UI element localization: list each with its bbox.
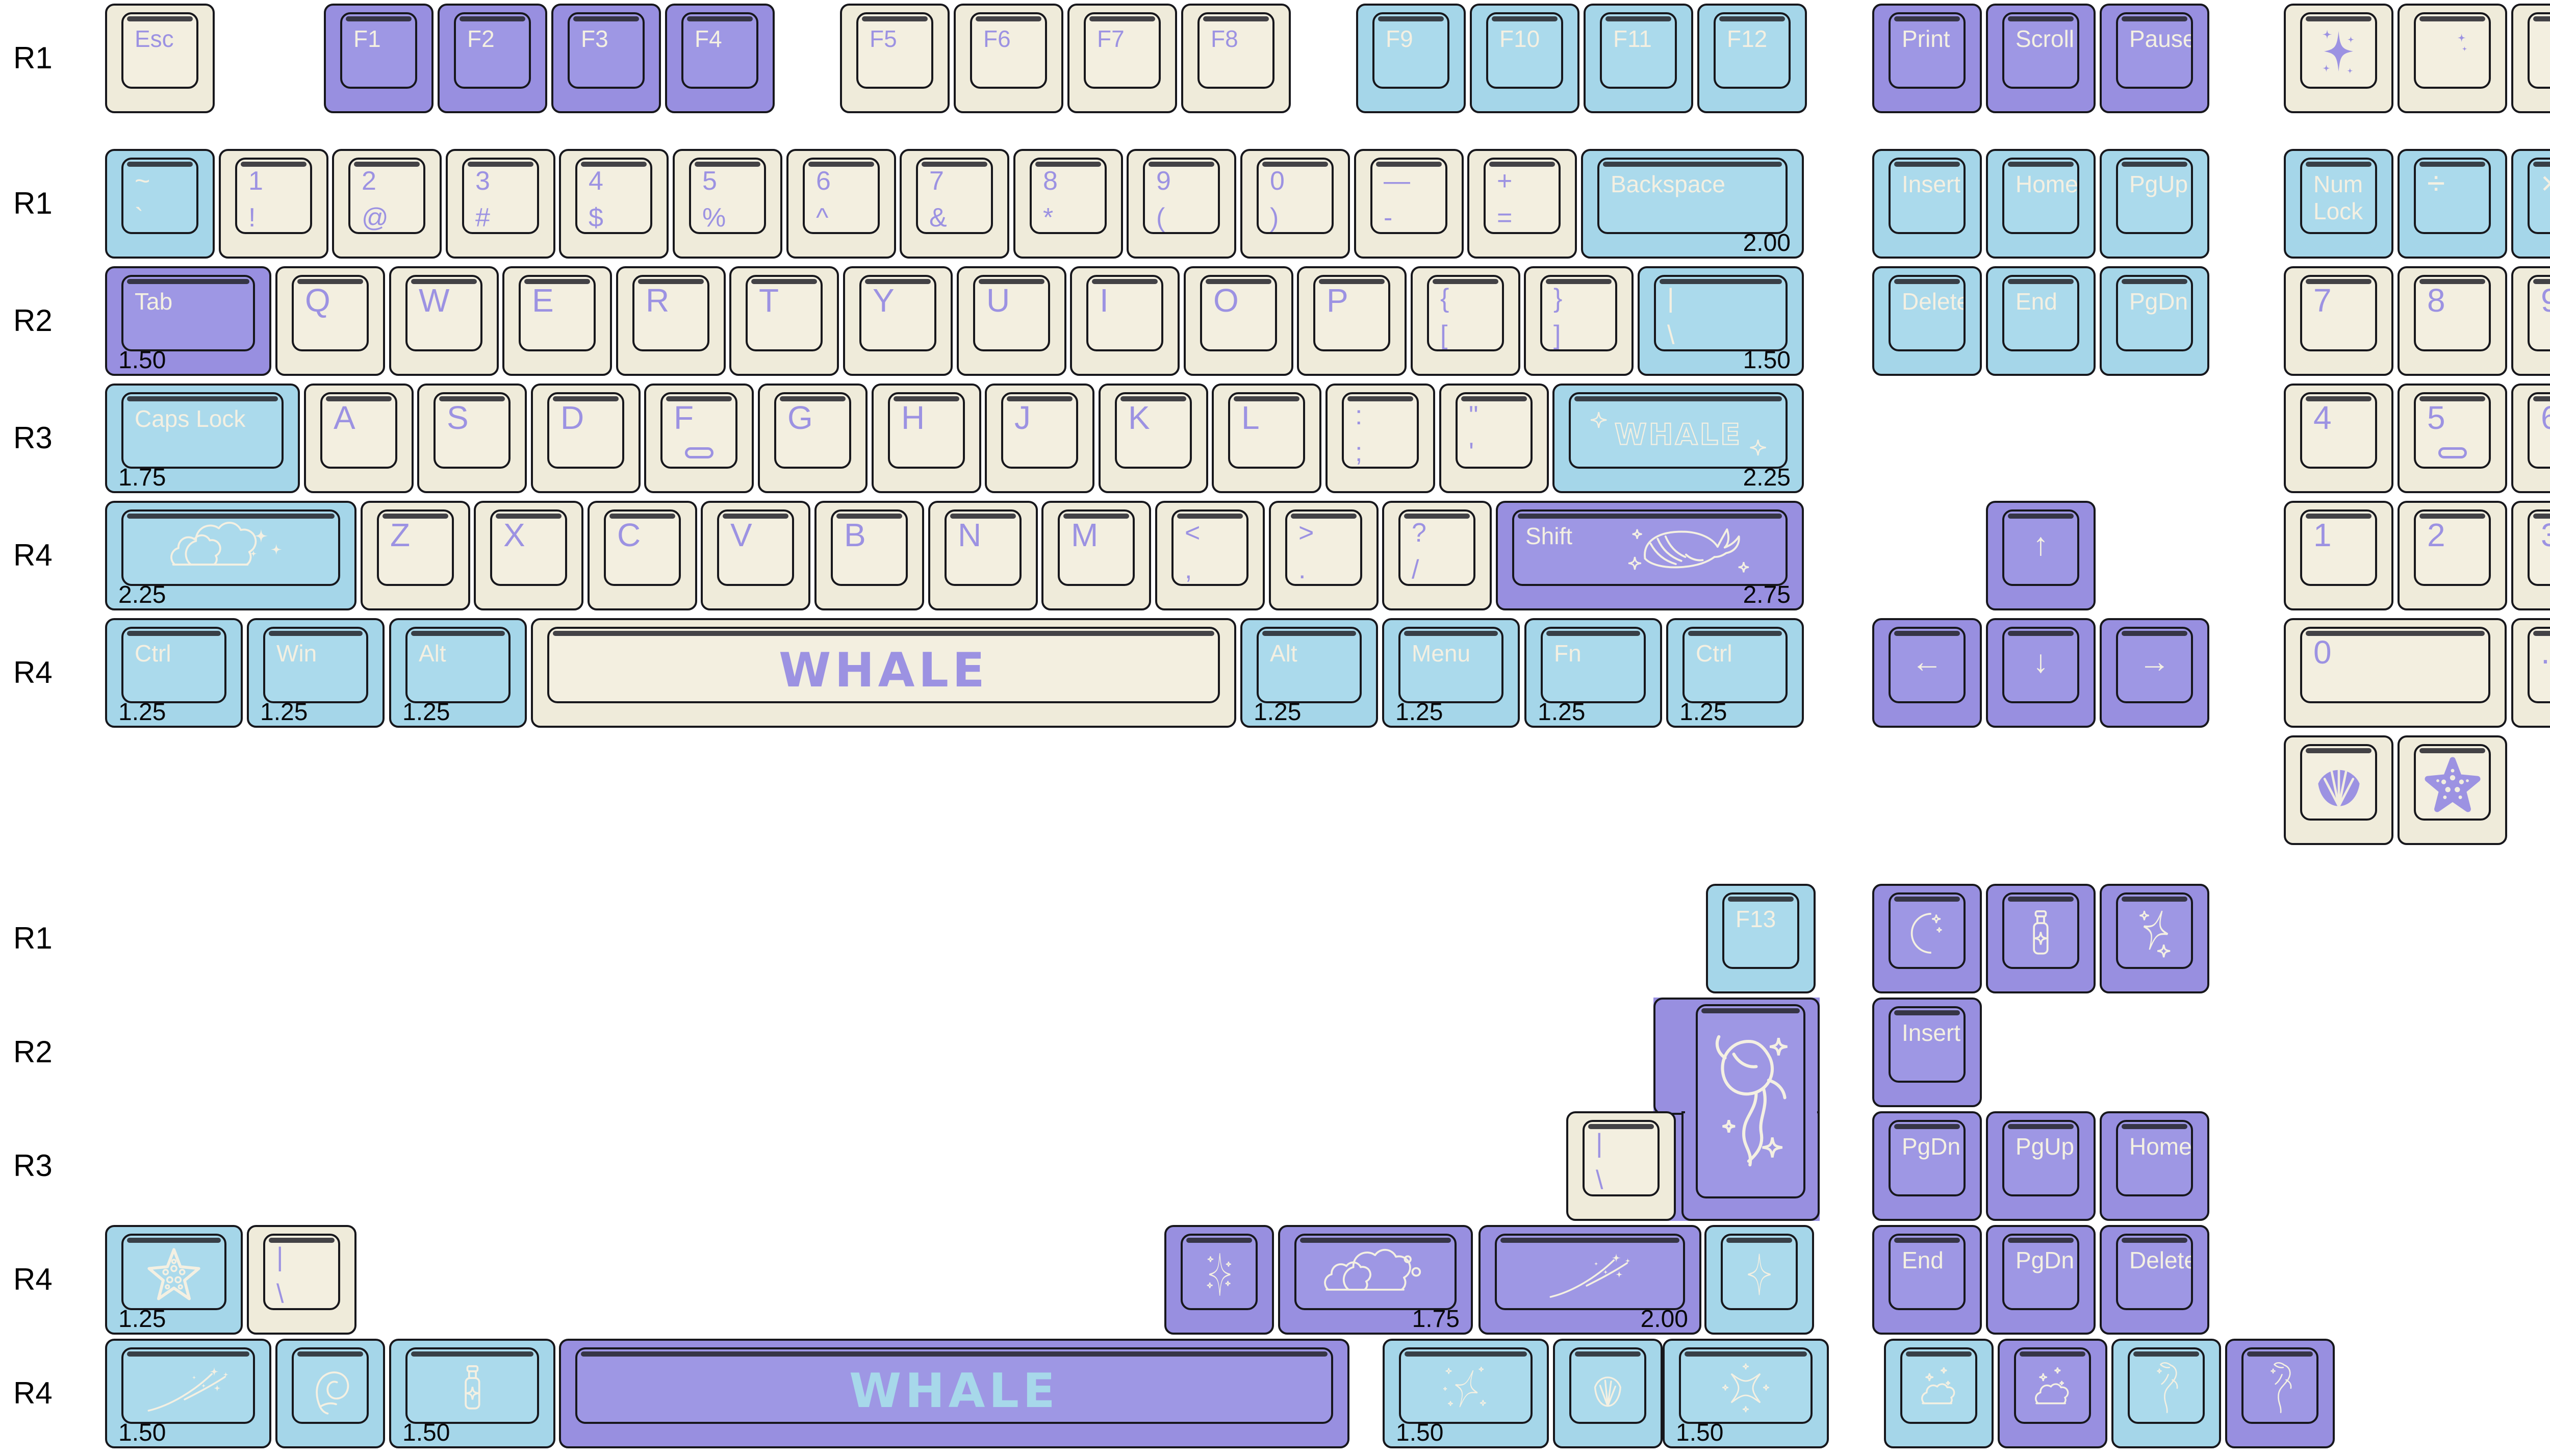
size-annotation: 1.75 (1412, 1307, 1460, 1332)
key-insert-b: Insert (1872, 998, 1982, 1107)
size-annotation: 2.00 (1641, 1307, 1688, 1332)
key-0: 0) (1240, 149, 1350, 259)
koi-icon (1704, 1015, 1797, 1192)
key-label: Menu (1412, 640, 1470, 667)
key-legend: Z (390, 519, 410, 551)
key-legend-top: — (1384, 168, 1410, 194)
key-legend-top: 6 (816, 168, 831, 194)
key-label: F7 (1097, 25, 1125, 53)
key-legend: 0 (2313, 636, 2332, 669)
key-legend-top: < (1185, 520, 1200, 546)
key-slash: ?/ (1382, 501, 1492, 610)
shooting-stars-icon (130, 1359, 247, 1418)
key-legend-bottom: $ (589, 205, 603, 231)
key-end-b: End (1872, 1225, 1982, 1335)
key-legend: → (2118, 646, 2191, 678)
key-novelty-moon (2398, 4, 2507, 113)
key-legend: I (1100, 284, 1109, 317)
key-comma: <, (1155, 501, 1265, 610)
row-label: R3 (13, 1151, 53, 1181)
key-legend: M (1071, 519, 1098, 551)
key-minus: —- (1354, 149, 1464, 259)
svg-text:WHALE: WHALE (1614, 418, 1742, 451)
row-label: R4 (13, 657, 53, 688)
size-annotation: 1.25 (1254, 700, 1301, 725)
size-annotation: 2.25 (1743, 466, 1791, 490)
key-label: F6 (983, 25, 1011, 53)
key-rctrl: Ctrl1.25 (1666, 618, 1804, 728)
starfish-outline-icon (130, 1245, 218, 1304)
key-shooting-star-150-key: 1.50 (105, 1339, 271, 1448)
key-legend: B (844, 519, 866, 551)
key-cloud-small-blue (1884, 1339, 1994, 1448)
key-legend: E (532, 284, 554, 317)
whale-icon (1601, 521, 1779, 580)
key-f8: F8 (1181, 4, 1291, 113)
key-legend-top: > (1298, 520, 1314, 546)
key-z: Z (361, 501, 470, 610)
key-f7: F7 (1067, 4, 1177, 113)
keycap-layout-board: R1R1R2R3R4R4R1R2R3R4R4 EscF1F2F3F4F5F6F7… (0, 0, 2550, 1456)
size-annotation: 1.50 (1396, 1421, 1443, 1445)
key-legend: R (646, 284, 669, 317)
key-u: U (957, 266, 1066, 376)
key-num-div: ÷ (2398, 149, 2507, 259)
key-starfish-outline-key: 1.25 (105, 1225, 243, 1335)
key-num-5: 5 (2398, 384, 2507, 493)
fish-dive-icon (2136, 1359, 2197, 1418)
size-annotation: 1.25 (1395, 700, 1443, 725)
key-arrow-down: ↓ (1986, 618, 2096, 728)
key-legend-top: 2 (362, 168, 376, 194)
key-delete: Delete (1872, 266, 1982, 376)
sparkle-outline-big-icon (2124, 904, 2185, 963)
key-num-2: 2 (2398, 501, 2507, 610)
key-legend-top: } (1553, 285, 1562, 312)
key-label: End (2016, 288, 2057, 315)
key-novelty-sparkle-outline (2100, 884, 2209, 993)
key-f5: F5 (840, 4, 950, 113)
key-novelty-bottle-outline (1986, 884, 2096, 993)
key-label: Fn (1554, 640, 1582, 667)
clouds-175-icon (1303, 1245, 1448, 1304)
key-legend-top: 5 (702, 168, 717, 194)
key-pgdn-b2: PgDn (1986, 1225, 2096, 1335)
key-quote: "' (1439, 384, 1549, 493)
cloud-small-icon (1908, 1359, 1969, 1418)
key-legend-bottom: ( (1156, 205, 1165, 231)
key-sparkle-cluster-150-key: 1.50 (1383, 1339, 1549, 1448)
key-legend-bottom: . (1298, 556, 1306, 583)
size-annotation: 2.75 (1743, 583, 1791, 607)
key-t: T (729, 266, 839, 376)
key-pause: Pause (2100, 4, 2209, 113)
key-print: Print (1872, 4, 1982, 113)
key-tab: Tab1.50 (105, 266, 271, 376)
key-legend: D (560, 401, 584, 434)
starfish-solid-icon (2422, 755, 2483, 814)
svg-text:WHALE: WHALE (779, 643, 988, 697)
key-label: F5 (870, 25, 897, 53)
key-legend-bottom: # (475, 205, 490, 231)
key-legend: K (1128, 401, 1150, 434)
bottle-icon (2536, 23, 2550, 83)
key-6: 6^ (786, 149, 896, 259)
key-label: Backspace (1611, 171, 1725, 198)
key-iso-koi-enter (1653, 998, 1820, 1221)
key-label: F11 (1613, 25, 1652, 53)
key-legend: ↓ (2004, 646, 2077, 678)
key-legend-top: | (1596, 1130, 1603, 1157)
key-num-7: 7 (2284, 266, 2393, 376)
key-r: R (616, 266, 726, 376)
key-legend: 2 (2427, 519, 2445, 551)
key-label: PgUp (2129, 171, 2188, 198)
key-f4: F4 (665, 4, 775, 113)
key-x: X (474, 501, 583, 610)
key-h: H (872, 384, 981, 493)
key-legend-top: 4 (589, 168, 603, 194)
key-legend-bottom: \ (1596, 1167, 1603, 1193)
key-f13: F13 (1706, 884, 1816, 993)
key-legend-bottom: - (1384, 205, 1392, 231)
row-label: R2 (13, 1037, 53, 1067)
key-period: >. (1269, 501, 1379, 610)
scallop-solid-icon (2308, 755, 2369, 814)
key-legend-bottom: , (1185, 556, 1192, 583)
key-legend-top: ? (1412, 520, 1426, 546)
key-legend-bottom: * (1043, 205, 1053, 231)
key-lalt: Alt1.25 (389, 618, 527, 728)
key-legend: N (958, 519, 981, 551)
key-legend: 7 (2313, 284, 2332, 317)
row-label: R4 (13, 1264, 53, 1295)
key-bracket-right: }] (1524, 266, 1634, 376)
key-f10: F10 (1470, 4, 1579, 113)
row-label: R1 (13, 43, 53, 73)
key-legend-bottom: & (929, 205, 947, 231)
key-label: F4 (695, 25, 722, 53)
key-legend: 3 (2541, 519, 2550, 551)
key-legend-bottom: % (702, 205, 726, 231)
sparkle-stars-icon (1189, 1245, 1249, 1304)
size-annotation: 1.25 (260, 700, 308, 725)
key-home-b: Home (2100, 1111, 2209, 1221)
key-legend: H (901, 401, 925, 434)
key-sparkle-stars-key (1164, 1225, 1274, 1335)
row-label: R3 (13, 423, 53, 453)
size-annotation: 1.50 (1743, 348, 1791, 373)
key-legend: G (787, 401, 813, 434)
key-pgup: PgUp (2100, 149, 2209, 259)
cloud-scene-icon (130, 521, 332, 580)
key-arrow-left: ← (1872, 618, 1982, 728)
key-novelty-sparkle-burst (2284, 4, 2393, 113)
key-legend-top: { (1440, 285, 1449, 312)
key-conch-key (275, 1339, 385, 1448)
key-label: Scroll (2016, 25, 2074, 53)
key-legend: ↑ (2004, 529, 2077, 560)
fish-dive-icon (2250, 1359, 2310, 1418)
size-annotation: 1.50 (118, 348, 166, 373)
key-legend-bottom: @ (362, 205, 389, 231)
key-legend-top: | (1667, 285, 1674, 312)
key-label: Insert (1902, 171, 1960, 198)
key-label: F10 (1499, 25, 1540, 53)
key-g: G (758, 384, 868, 493)
key-scallop-outline-key (1553, 1339, 1663, 1448)
key-pgup-b: PgUp (1986, 1111, 2096, 1221)
key-legend: S (447, 401, 469, 434)
key-cloud-small-purple (1998, 1339, 2107, 1448)
key-legend-bottom: / (1412, 556, 1419, 583)
key-win: Win1.25 (247, 618, 385, 728)
row-label: R1 (13, 923, 53, 954)
key-legend: J (1014, 401, 1031, 434)
row-label: R4 (13, 1378, 53, 1409)
key-fish-dive-purple (2225, 1339, 2335, 1448)
bottle-sparkle-outline-icon (2010, 904, 2071, 963)
key-backslash-b1: |\ (1566, 1111, 1676, 1221)
key-legend: X (503, 519, 525, 551)
key-label: Delete (2129, 1247, 2193, 1274)
key-insert: Insert (1872, 149, 1982, 259)
key-sparkle-x-150-key: 1.50 (1663, 1339, 1829, 1448)
key-legend-top: 9 (1156, 168, 1171, 194)
key-fish-dive-blue (2111, 1339, 2221, 1448)
key-num-6: 6 (2511, 384, 2550, 493)
scallop-outline-icon (1577, 1359, 1638, 1418)
key-l: L (1212, 384, 1321, 493)
key-legend-top: 7 (929, 168, 944, 194)
key-a: A (304, 384, 414, 493)
key-label: F1 (353, 25, 381, 53)
key-legend-bottom: ^ (816, 205, 828, 231)
size-annotation: 1.25 (118, 700, 166, 725)
key-legend: V (730, 519, 752, 551)
key-legend-bottom: ' (1469, 439, 1474, 466)
key-y: Y (843, 266, 953, 376)
key-pgdn-b1: PgDn (1872, 1111, 1982, 1221)
key-num-8: 8 (2398, 266, 2507, 376)
row-label: R4 (13, 540, 53, 571)
key-space-top: WHALE (531, 618, 1236, 728)
key-legend: Y (873, 284, 895, 317)
key-legend: ← (1891, 646, 1963, 678)
svg-text:WHALE: WHALE (849, 1363, 1059, 1418)
key-menu: Menu1.25 (1382, 618, 1520, 728)
key-7: 7& (900, 149, 1009, 259)
key-legend: O (1213, 284, 1239, 317)
key-bracket-left: {[ (1411, 266, 1520, 376)
key-num-1: 1 (2284, 501, 2393, 610)
key-8: 8* (1013, 149, 1123, 259)
row-label: R2 (13, 305, 53, 336)
key-c: C (588, 501, 697, 610)
key-space-whale: WHALE (559, 1339, 1349, 1448)
key-arrow-right: → (2100, 618, 2209, 728)
cloud-small-icon (2022, 1359, 2083, 1418)
sparkle-cluster-icon (1407, 1359, 1524, 1418)
size-annotation: 1.25 (402, 700, 450, 725)
row-label: R1 (13, 188, 53, 219)
key-f1: F1 (324, 4, 433, 113)
key-fn: Fn1.25 (1524, 618, 1662, 728)
key-pgdn: PgDn (2100, 266, 2209, 376)
key-lshift-cloud: 2.25 (105, 501, 356, 610)
key-v: V (701, 501, 810, 610)
whale-logo-outline-icon: WHALE (1577, 403, 1779, 463)
key-numlock: Num Lock (2284, 149, 2393, 259)
key-legend-top: 0 (1270, 168, 1285, 194)
key-label: Home (2129, 1133, 2192, 1160)
size-annotation: 1.50 (1676, 1421, 1723, 1445)
key-num-4: 4 (2284, 384, 2393, 493)
key-legend: 5 (2427, 401, 2445, 434)
key-novelty-starfish-solid (2398, 735, 2507, 845)
key-3: 3# (446, 149, 555, 259)
key-label: F3 (581, 25, 608, 53)
key-legend-bottom: ; (1355, 439, 1362, 466)
key-label: PgDn (2016, 1247, 2074, 1274)
key-f2: F2 (438, 4, 547, 113)
size-annotation: 2.25 (118, 583, 166, 607)
key-legend-top: 8 (1043, 168, 1058, 194)
shooting-stars-icon (1503, 1245, 1677, 1304)
key-legend-top: : (1355, 402, 1362, 429)
size-annotation: 1.50 (402, 1421, 450, 1445)
key-legend-top: | (276, 1244, 284, 1270)
key-k: K (1099, 384, 1208, 493)
key-label: Caps Lock (135, 405, 245, 432)
bottle-sparkle-outline-icon (414, 1359, 531, 1418)
key-capslock: Caps Lock1.75 (105, 384, 300, 493)
key-legend: F (674, 401, 694, 434)
key-b: B (814, 501, 924, 610)
key-legend-top: + (1497, 168, 1512, 194)
key-label: Home (2016, 171, 2078, 198)
key-legend-bottom: \ (1667, 322, 1674, 348)
key-f11: F11 (1584, 4, 1693, 113)
key-f9: F9 (1356, 4, 1466, 113)
key-legend-bottom: ! (248, 205, 256, 231)
key-label: PgDn (2129, 288, 2188, 315)
key-legend: . (2541, 636, 2550, 669)
key-num-3: 3 (2511, 501, 2550, 610)
homing-bar (2438, 447, 2467, 458)
key-potion-150-key: 1.50 (389, 1339, 555, 1448)
key-legend: 9 (2541, 284, 2550, 317)
key-num-mul: × (2511, 149, 2550, 259)
key-f3: F3 (551, 4, 661, 113)
key-j: J (985, 384, 1094, 493)
key-legend-top: " (1469, 402, 1478, 429)
key-legend: 1 (2313, 519, 2332, 551)
key-9: 9( (1127, 149, 1236, 259)
key-legend-top: 1 (248, 168, 263, 194)
key-q: Q (275, 266, 385, 376)
key-5: 5% (673, 149, 782, 259)
moon-stars-icon (2422, 23, 2483, 83)
key-legend: 6 (2541, 401, 2550, 434)
key-legend-top: ~ (135, 168, 150, 194)
key-label: Win (276, 640, 317, 667)
key-arrow-up: ↑ (1986, 501, 2096, 610)
sparkle-x-icon (1687, 1359, 1804, 1418)
key-end: End (1986, 266, 2096, 376)
key-grave: ~` (105, 149, 215, 259)
key-1: 1! (219, 149, 328, 259)
key-label: Num Lock (2313, 171, 2363, 225)
key-label: Alt (1270, 640, 1297, 667)
moon-stars-outline-icon (1897, 904, 1957, 963)
sparkle-burst-icon (2308, 23, 2369, 83)
key-label: PgUp (2016, 1133, 2074, 1160)
key-equals: += (1467, 149, 1577, 259)
key-novelty-bottle (2511, 4, 2550, 113)
whale-logo-solid-icon: WHALE (583, 1359, 1325, 1418)
key-label: PgDn (1902, 1133, 1960, 1160)
key-i: I (1070, 266, 1180, 376)
key-label: Shift (1525, 523, 1572, 550)
key-legend: × (2541, 167, 2550, 199)
key-legend: T (759, 284, 779, 317)
homing-bar (685, 447, 713, 458)
key-legend: L (1241, 401, 1260, 434)
key-label: F13 (1736, 906, 1776, 933)
key-legend: C (617, 519, 641, 551)
key-label: Print (1902, 25, 1950, 53)
key-sparkle-tall-key (1704, 1225, 1814, 1335)
key-f12: F12 (1697, 4, 1807, 113)
key-p: P (1297, 266, 1407, 376)
conch-icon (300, 1359, 361, 1418)
key-legend: U (986, 284, 1010, 317)
key-label: F8 (1211, 25, 1238, 53)
key-legend: 4 (2313, 401, 2332, 434)
key-label: F12 (1727, 25, 1767, 53)
key-m: M (1041, 501, 1151, 610)
key-legend-bottom: \ (276, 1281, 284, 1307)
size-annotation: 1.25 (1679, 700, 1727, 725)
key-legend: P (1327, 284, 1348, 317)
size-annotation: 1.25 (1538, 700, 1585, 725)
key-semicolon: :; (1325, 384, 1435, 493)
size-annotation: 1.50 (118, 1421, 166, 1445)
key-4: 4$ (559, 149, 669, 259)
key-n: N (928, 501, 1038, 610)
key-f6: F6 (954, 4, 1063, 113)
key-label: Pause (2129, 25, 2193, 53)
key-label: F9 (1386, 25, 1413, 53)
size-annotation: 1.25 (118, 1307, 166, 1332)
key-legend-bottom: ` (135, 205, 143, 231)
key-backspace: Backspace2.00 (1581, 149, 1804, 259)
key-num-0: 0 (2284, 618, 2507, 728)
key-label: F2 (467, 25, 495, 53)
key-ralt: Alt1.25 (1240, 618, 1378, 728)
key-num-dot: . (2511, 618, 2550, 728)
key-legend: A (334, 401, 355, 434)
size-annotation: 1.75 (118, 466, 166, 490)
key-label: Ctrl (135, 640, 171, 667)
key-label: Alt (419, 640, 446, 667)
whale-logo-solid-icon: WHALE (555, 638, 1212, 697)
key-novelty-shell-solid (2284, 735, 2393, 845)
key-rshift: Shift 2.75 (1496, 501, 1804, 610)
key-label: Esc (135, 25, 174, 53)
key-enter-whale: WHALE2.25 (1552, 384, 1804, 493)
